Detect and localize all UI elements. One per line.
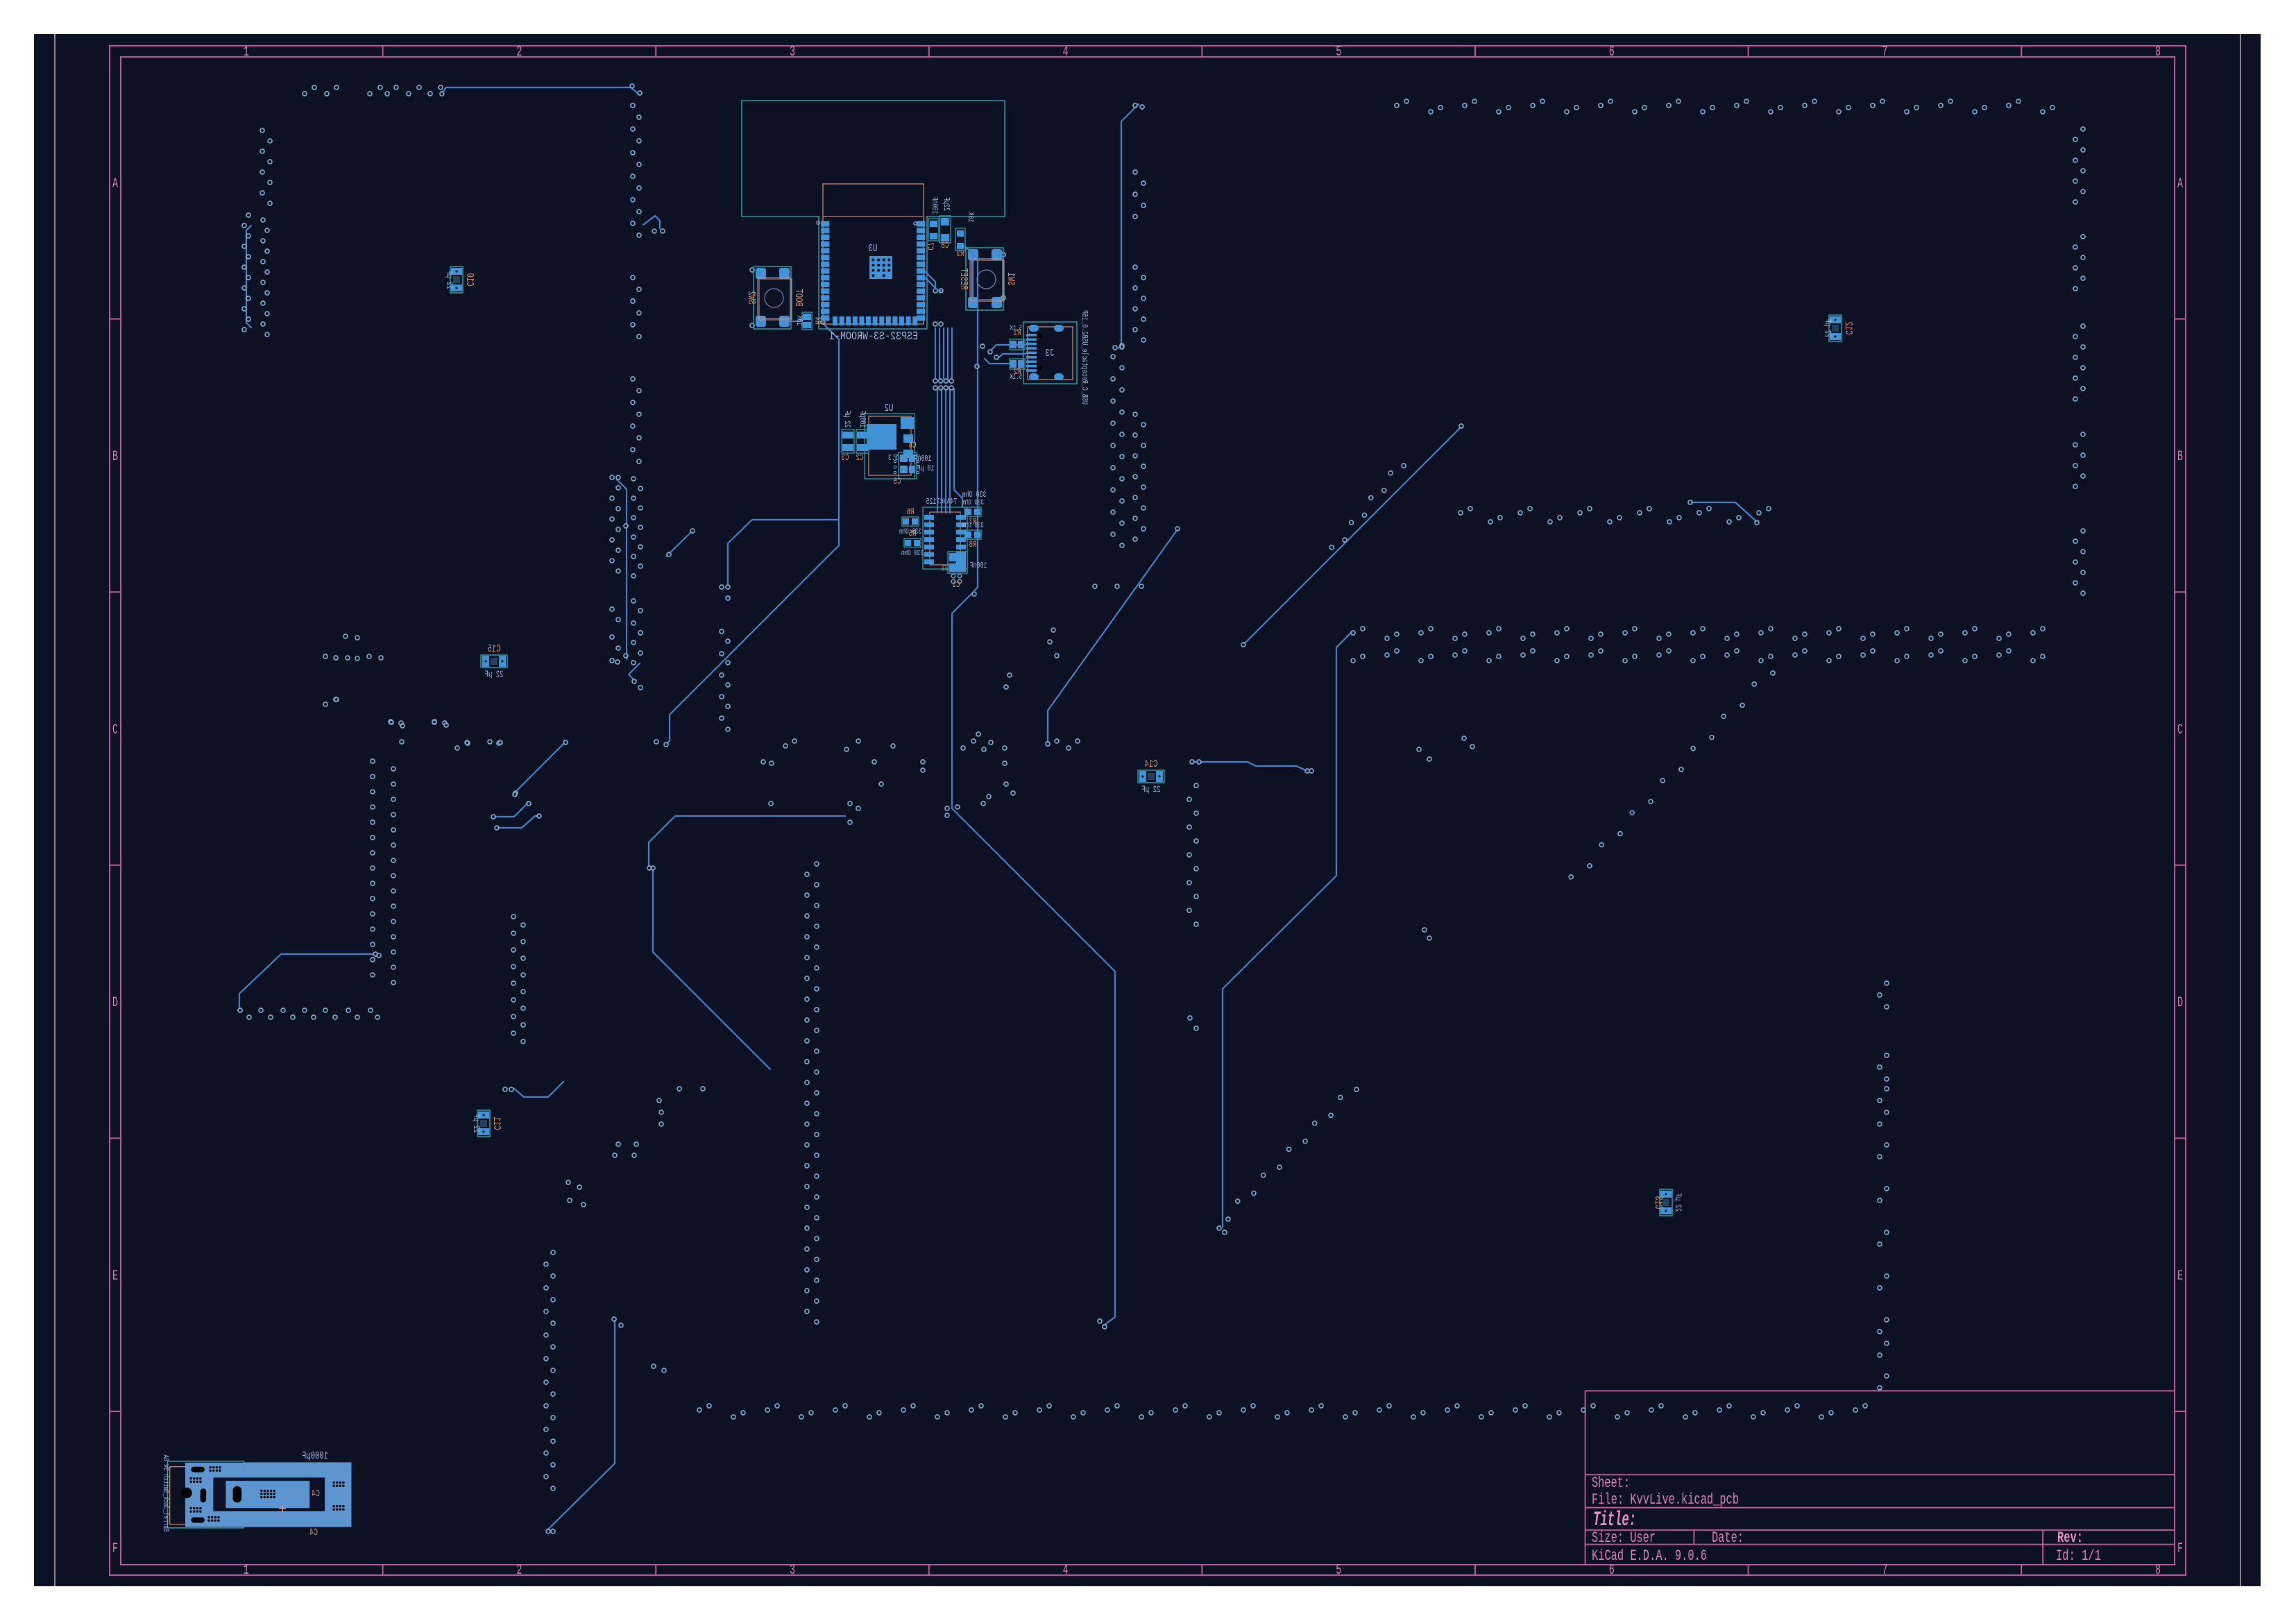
svg-text:100nF: 100nF bbox=[970, 561, 987, 570]
svg-text:D: D bbox=[112, 995, 118, 1011]
svg-text:D: D bbox=[2177, 995, 2183, 1011]
svg-text:File: KvvLive.kicad_pcb: File: KvvLive.kicad_pcb bbox=[1592, 1491, 1739, 1509]
svg-text:F: F bbox=[2177, 1541, 2183, 1557]
svg-text:C10: C10 bbox=[464, 273, 475, 287]
svg-text:C12: C12 bbox=[1842, 322, 1854, 335]
svg-text:Barrel_Jack_Switch 5V 8A: Barrel_Jack_Switch 5V 8A bbox=[161, 1454, 169, 1531]
svg-text:F: F bbox=[112, 1541, 118, 1557]
svg-text:1000µF: 1000µF bbox=[302, 1450, 328, 1462]
svg-text:ESP32-S3-WROOM-1: ESP32-S3-WROOM-1 bbox=[829, 330, 918, 343]
svg-text:4: 4 bbox=[1063, 44, 1069, 60]
svg-text:C5: C5 bbox=[894, 476, 901, 486]
svg-text:R6: R6 bbox=[907, 507, 915, 517]
svg-text:22 µF: 22 µF bbox=[842, 411, 852, 428]
svg-text:100nF: 100nF bbox=[930, 197, 939, 214]
svg-text:SW1: SW1 bbox=[1005, 273, 1017, 286]
svg-text:5: 5 bbox=[1336, 44, 1341, 60]
svg-text:1: 1 bbox=[244, 1563, 249, 1579]
svg-text:B: B bbox=[2177, 449, 2183, 465]
svg-text:R5: R5 bbox=[909, 528, 917, 538]
svg-text:C11: C11 bbox=[491, 1117, 502, 1130]
svg-text:5: 5 bbox=[1336, 1563, 1341, 1579]
svg-text:330 Ohm: 330 Ohm bbox=[962, 499, 984, 507]
svg-text:330 Ohm: 330 Ohm bbox=[962, 522, 984, 530]
svg-text:C15: C15 bbox=[488, 643, 501, 655]
svg-text:BOOT: BOOT bbox=[792, 289, 804, 307]
svg-text:USB_C_Receptacle_USB2.0_16P: USB_C_Receptacle_USB2.0_16P bbox=[1080, 310, 1089, 405]
svg-text:Size: User: Size: User bbox=[1592, 1529, 1656, 1547]
svg-text:100nF: 100nF bbox=[915, 454, 932, 464]
svg-text:Title:: Title: bbox=[1593, 1509, 1636, 1532]
svg-text:E: E bbox=[112, 1268, 118, 1284]
svg-text:10K: 10K bbox=[966, 212, 976, 223]
svg-text:8: 8 bbox=[2155, 1563, 2161, 1579]
svg-text:C6: C6 bbox=[909, 440, 917, 450]
svg-text:Date:: Date: bbox=[1712, 1529, 1744, 1547]
svg-text:10 µF: 10 µF bbox=[917, 464, 935, 473]
svg-text:C3: C3 bbox=[842, 452, 849, 463]
svg-text:R4: R4 bbox=[813, 316, 823, 324]
svg-text:3: 3 bbox=[790, 44, 795, 60]
svg-text:SW2: SW2 bbox=[745, 291, 757, 305]
svg-text:A: A bbox=[112, 176, 118, 192]
svg-text:R3: R3 bbox=[957, 248, 964, 259]
svg-text:R8: R8 bbox=[969, 539, 977, 550]
svg-text:2: 2 bbox=[516, 44, 522, 60]
svg-text:22 µF: 22 µF bbox=[485, 669, 504, 679]
svg-text:330 Ohm: 330 Ohm bbox=[901, 550, 924, 558]
svg-text:KiCad E.D.A. 9.0.6: KiCad E.D.A. 9.0.6 bbox=[1592, 1547, 1707, 1565]
svg-text:E: E bbox=[2177, 1268, 2183, 1284]
svg-text:22 µF: 22 µF bbox=[444, 271, 454, 289]
svg-text:7: 7 bbox=[1882, 44, 1887, 60]
svg-text:C8: C8 bbox=[942, 240, 949, 250]
svg-text:Id: 1/1: Id: 1/1 bbox=[2056, 1547, 2101, 1565]
svg-text:3: 3 bbox=[790, 1563, 795, 1579]
svg-text:5.1K: 5.1K bbox=[1010, 325, 1022, 333]
svg-text:C1: C1 bbox=[952, 579, 960, 590]
svg-text:C4: C4 bbox=[309, 1527, 318, 1538]
svg-text:5.1K: 5.1K bbox=[1010, 373, 1022, 382]
svg-text:22 µF: 22 µF bbox=[471, 1114, 482, 1133]
svg-text:U2: U2 bbox=[885, 402, 894, 414]
svg-text:6: 6 bbox=[1609, 1563, 1615, 1579]
svg-text:22µF: 22µF bbox=[942, 197, 951, 211]
svg-text:C7: C7 bbox=[925, 243, 935, 250]
svg-text:22 µF: 22 µF bbox=[1142, 784, 1161, 794]
svg-text:C14: C14 bbox=[1145, 758, 1158, 770]
svg-text:7: 7 bbox=[1882, 1563, 1887, 1579]
svg-text:10K: 10K bbox=[794, 315, 804, 326]
svg-text:C13: C13 bbox=[1652, 1196, 1664, 1209]
svg-text:1: 1 bbox=[244, 44, 249, 60]
svg-text:C2: C2 bbox=[856, 452, 864, 463]
svg-text:22 µF: 22 µF bbox=[1673, 1193, 1683, 1212]
svg-text:330 Ohm: 330 Ohm bbox=[962, 490, 987, 500]
svg-text:6: 6 bbox=[1609, 44, 1615, 60]
svg-text:C: C bbox=[2177, 722, 2183, 738]
svg-text:Rev:: Rev: bbox=[2057, 1529, 2083, 1547]
svg-text:C: C bbox=[112, 722, 118, 738]
svg-text:J3: J3 bbox=[1046, 348, 1055, 359]
svg-text:2: 2 bbox=[516, 1563, 522, 1579]
svg-text:RESET: RESET bbox=[958, 269, 969, 290]
svg-text:U3: U3 bbox=[869, 243, 878, 255]
svg-text:B: B bbox=[112, 449, 118, 465]
svg-text:Sheet:: Sheet: bbox=[1592, 1475, 1630, 1492]
svg-text:22 µF: 22 µF bbox=[1823, 319, 1833, 338]
svg-text:8: 8 bbox=[2155, 44, 2161, 60]
svg-text:4: 4 bbox=[1063, 1563, 1069, 1579]
svg-text:100µF: 100µF bbox=[858, 411, 867, 428]
svg-text:C4: C4 bbox=[312, 1488, 320, 1499]
svg-text:A: A bbox=[2177, 176, 2183, 192]
